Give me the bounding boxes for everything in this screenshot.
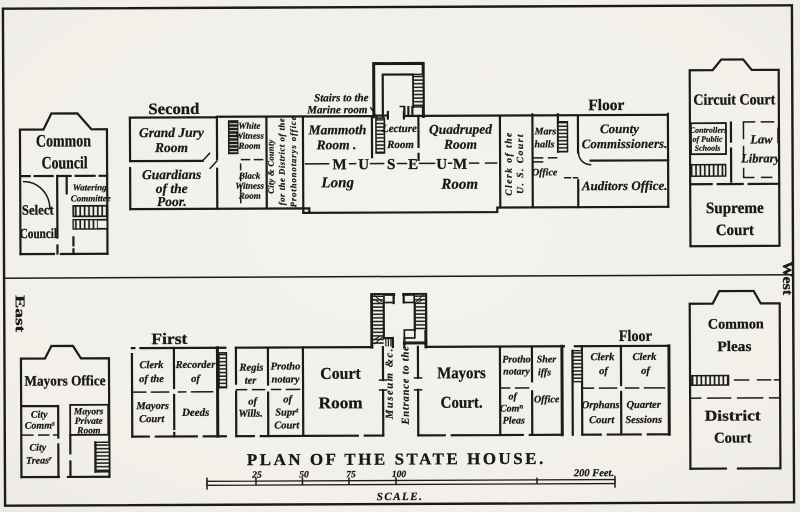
svg-text:Room: Room bbox=[319, 393, 363, 412]
svg-text:U: U bbox=[358, 157, 369, 173]
svg-text:of the: of the bbox=[139, 374, 164, 385]
svg-text:for the District of the: for the District of the bbox=[276, 118, 286, 206]
svg-text:Mammoth: Mammoth bbox=[308, 122, 367, 137]
svg-text:White: White bbox=[238, 121, 260, 131]
svg-text:PLAN OF THE STATE HOUSE.: PLAN OF THE STATE HOUSE. bbox=[247, 449, 546, 469]
svg-text:Sessions: Sessions bbox=[625, 415, 662, 426]
svg-text:of: of bbox=[283, 394, 293, 405]
svg-text:SCALE.: SCALE. bbox=[377, 491, 424, 503]
svg-text:Comms: Comms bbox=[25, 419, 55, 431]
svg-text:Common: Common bbox=[708, 316, 764, 332]
svg-text:Quarter: Quarter bbox=[626, 400, 661, 411]
svg-text:Room: Room bbox=[386, 139, 414, 151]
svg-text:200 Feet.: 200 Feet. bbox=[573, 468, 614, 479]
svg-text:Room: Room bbox=[237, 141, 260, 151]
svg-text:S: S bbox=[387, 157, 395, 173]
svg-text:Witness: Witness bbox=[235, 131, 264, 141]
svg-text:of Public: of Public bbox=[692, 135, 722, 144]
svg-text:City: City bbox=[31, 410, 48, 421]
svg-text:Library: Library bbox=[740, 151, 780, 165]
svg-text:M: M bbox=[453, 157, 467, 173]
svg-text:Stairs to the: Stairs to the bbox=[314, 92, 369, 104]
svg-text:Supreme: Supreme bbox=[706, 200, 764, 217]
svg-text:Guardians: Guardians bbox=[142, 167, 201, 182]
svg-text:Quadruped: Quadruped bbox=[429, 122, 492, 137]
svg-text:Mayors: Mayors bbox=[437, 363, 486, 382]
svg-text:Room: Room bbox=[154, 140, 188, 155]
svg-text:50: 50 bbox=[299, 470, 309, 480]
svg-text:Room .: Room . bbox=[316, 137, 357, 152]
svg-text:Court: Court bbox=[139, 414, 165, 425]
svg-text:First: First bbox=[151, 331, 188, 348]
svg-text:Treasr: Treasr bbox=[26, 455, 52, 467]
svg-text:E: E bbox=[408, 157, 418, 173]
svg-text:Poor.: Poor. bbox=[157, 194, 187, 209]
svg-text:Controllers: Controllers bbox=[690, 126, 727, 135]
svg-text:Deeds: Deeds bbox=[181, 407, 210, 419]
svg-text:Protho: Protho bbox=[271, 361, 301, 372]
svg-text:Auditors Office.: Auditors Office. bbox=[581, 178, 668, 193]
svg-text:Select: Select bbox=[22, 203, 54, 218]
svg-text:Protho: Protho bbox=[502, 354, 530, 365]
svg-text:Clerk of the: Clerk of the bbox=[504, 131, 514, 195]
svg-text:Orphans: Orphans bbox=[582, 400, 620, 411]
svg-text:Council: Council bbox=[20, 227, 57, 242]
svg-text:Court: Court bbox=[589, 415, 615, 426]
svg-text:Law: Law bbox=[749, 132, 773, 146]
svg-text:M: M bbox=[332, 157, 346, 173]
svg-text:Clerk: Clerk bbox=[632, 352, 657, 363]
svg-text:halls: halls bbox=[534, 139, 554, 150]
svg-text:Mayors Office: Mayors Office bbox=[25, 373, 107, 389]
svg-text:Room: Room bbox=[440, 177, 478, 193]
svg-text:City & County: City & County bbox=[265, 139, 275, 193]
svg-text:West: West bbox=[779, 261, 794, 295]
svg-text:City: City bbox=[29, 443, 46, 454]
svg-text:of: of bbox=[191, 374, 201, 385]
svg-text:Court: Court bbox=[714, 430, 752, 446]
svg-text:100: 100 bbox=[392, 470, 407, 480]
svg-text:Floor: Floor bbox=[588, 97, 624, 114]
svg-text:Long: Long bbox=[320, 175, 354, 191]
svg-text:Lecture: Lecture bbox=[381, 123, 417, 135]
svg-text:Recorder: Recorder bbox=[175, 360, 217, 371]
svg-text:75: 75 bbox=[346, 470, 356, 480]
svg-text:Office: Office bbox=[532, 167, 558, 178]
svg-text:Room: Room bbox=[443, 137, 477, 152]
svg-text:Council: Council bbox=[42, 152, 88, 172]
svg-text:Schools: Schools bbox=[695, 144, 721, 153]
svg-text:Committee: Committee bbox=[71, 193, 111, 203]
svg-text:Black: Black bbox=[238, 171, 261, 181]
svg-text:Circuit Court: Circuit Court bbox=[693, 91, 776, 108]
svg-text:U. S. Court: U. S. Court bbox=[516, 133, 526, 194]
svg-text:of: of bbox=[599, 366, 609, 377]
svg-text:Court: Court bbox=[274, 420, 300, 431]
svg-text:Watering: Watering bbox=[73, 182, 107, 192]
svg-text:Sher: Sher bbox=[537, 354, 557, 365]
svg-text:Marine room: Marine room bbox=[306, 104, 368, 116]
svg-text:Court: Court bbox=[716, 222, 755, 239]
svg-text:East: East bbox=[13, 295, 28, 333]
svg-text:County: County bbox=[600, 121, 639, 136]
svg-text:Common: Common bbox=[36, 130, 91, 150]
svg-text:Commissioners.: Commissioners. bbox=[582, 136, 668, 151]
svg-text:notary: notary bbox=[503, 366, 530, 377]
svg-text:Grand Jury: Grand Jury bbox=[139, 125, 205, 140]
svg-text:Second: Second bbox=[148, 101, 199, 118]
svg-text:Clerk: Clerk bbox=[590, 352, 615, 363]
svg-text:Regis: Regis bbox=[239, 363, 264, 374]
svg-text:Floor: Floor bbox=[619, 328, 652, 345]
svg-text:Pleas: Pleas bbox=[503, 415, 525, 426]
svg-text:Court: Court bbox=[320, 364, 361, 383]
svg-text:Room: Room bbox=[238, 191, 261, 201]
svg-text:Mayors: Mayors bbox=[135, 401, 169, 412]
svg-text:25: 25 bbox=[251, 471, 262, 481]
svg-text:Entrance to the: Entrance to the bbox=[400, 345, 411, 425]
svg-text:ter: ter bbox=[245, 376, 258, 387]
svg-text:Museum &c.: Museum &c. bbox=[384, 347, 395, 420]
svg-text:Pleas: Pleas bbox=[717, 339, 751, 355]
svg-text:Court.: Court. bbox=[441, 393, 483, 412]
svg-text:Wills.: Wills. bbox=[238, 409, 262, 420]
svg-text:Clerk: Clerk bbox=[139, 360, 164, 371]
svg-text:Office: Office bbox=[534, 394, 560, 405]
svg-text:Witness: Witness bbox=[235, 181, 264, 191]
svg-text:of: of bbox=[641, 366, 651, 377]
svg-text:District: District bbox=[705, 408, 761, 424]
svg-text:of: of bbox=[248, 397, 258, 408]
svg-text:Prothonotarys office: Prothonotarys office bbox=[288, 115, 298, 207]
svg-text:Room: Room bbox=[76, 426, 100, 436]
svg-text:Suprt: Suprt bbox=[275, 406, 299, 418]
svg-text:iffs: iffs bbox=[538, 367, 551, 378]
svg-text:Mars: Mars bbox=[534, 126, 557, 137]
svg-text:U: U bbox=[436, 157, 447, 173]
svg-text:notary: notary bbox=[272, 374, 300, 385]
